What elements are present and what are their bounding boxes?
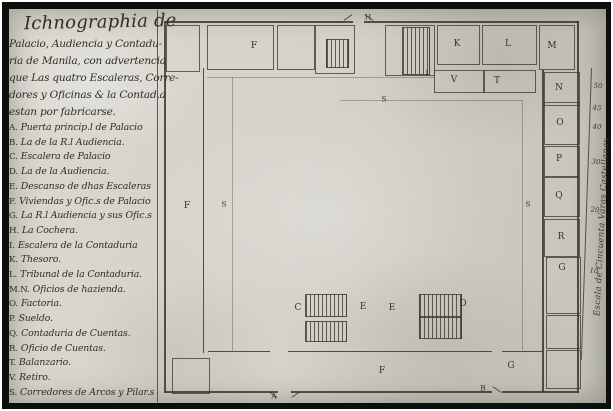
room [172, 358, 210, 394]
legend-item: T.Balanzario. [9, 356, 158, 371]
legend-item: F.Viviendas y Ofic.s de Palacio [9, 195, 158, 210]
plan-label: M [547, 41, 556, 51]
legend-key: F. [9, 197, 16, 207]
staircase-hatch [305, 321, 347, 342]
legend-key: P. [9, 314, 15, 324]
legend-key: C. [9, 152, 18, 162]
title-subline: Palacio, Audiencia y Contadu- [9, 36, 158, 53]
room [546, 315, 581, 349]
legend-key: E. [9, 182, 18, 192]
arcade-line [340, 100, 522, 101]
wall [291, 391, 492, 393]
plan-label: E [389, 303, 396, 313]
scale-tick: 40 [592, 123, 601, 132]
plan-label: F [184, 201, 190, 211]
staircase-hatch [305, 294, 347, 317]
staircase-hatch [419, 317, 462, 339]
legend-item: P.Sueldo. [9, 312, 158, 327]
plan-label: S [221, 200, 226, 209]
arcade-line [232, 77, 233, 352]
arcade-line [522, 100, 523, 350]
legend-key: R. [9, 344, 18, 354]
legend-item: C.Escalera de Palacio [9, 150, 158, 165]
scale-tick: 45 [592, 104, 601, 113]
room [277, 25, 315, 70]
plan-label: S [525, 200, 530, 209]
room [207, 25, 274, 70]
plan-label: B [480, 384, 486, 393]
title-subline: dores y Oficinas & la Contad.a [9, 87, 158, 104]
room [434, 70, 485, 93]
title-subline: estan por fabricarse. [9, 104, 158, 121]
legend-item: E.Descanso de dhas Escaleras [9, 180, 158, 195]
plan-label: N [555, 83, 563, 93]
plan-label: R [558, 232, 565, 242]
legend-text: Sueldo. [18, 313, 52, 324]
legend-key: M.N. [9, 285, 30, 295]
plan-label: F [251, 41, 257, 51]
wall [364, 21, 579, 23]
plan-label: A [271, 392, 276, 401]
legend-key: V. [9, 373, 16, 383]
plan-label: O [556, 118, 563, 128]
legend-item: O.Factoria. [9, 297, 158, 312]
legend-text: La de la R.l Audiencia. [21, 137, 125, 148]
legend-separator [157, 10, 158, 402]
scale-tick: 50 [593, 82, 602, 91]
plan-label: E [360, 302, 367, 312]
legend-key: L. [9, 270, 17, 280]
legend-text: Contaduria de Cuentas. [21, 328, 130, 339]
legend-item: S.Corredores de Arcos y Pilar.s [9, 386, 158, 401]
plan-label: L [505, 39, 511, 49]
legend-text: Puerta princip.l de Palacio [21, 122, 143, 133]
legend-key: A. [9, 123, 18, 133]
plan-label: V [451, 75, 458, 85]
plan-label: Q [555, 191, 562, 201]
plan-label: H [365, 13, 372, 22]
legend-text: Factoria. [21, 298, 62, 309]
legend-item: B.La de la R.l Audiencia. [9, 136, 158, 151]
legend-text: Balanzario. [19, 357, 71, 368]
legend-text: Escalera de la Contaduria [18, 240, 138, 251]
plan-label: K [454, 39, 461, 49]
legend-item: G.La R.l Audiencia y sus Ofic.s [9, 209, 158, 224]
legend-item: A.Puerta princip.l de Palacio [9, 121, 158, 136]
room [546, 350, 581, 389]
legend-text: Oficio de Cuentas. [21, 343, 106, 354]
wall [288, 351, 492, 352]
legend-item: H.La Cochera. [9, 224, 158, 239]
legend-key: S. [9, 388, 17, 398]
legend-item: D.La de la Audiencia. [9, 165, 158, 180]
staircase-hatch [419, 294, 462, 317]
legend-item: I.Escalera de la Contaduria [9, 239, 158, 254]
legend-text: Oficios de hazienda. [33, 284, 126, 295]
wall [502, 351, 543, 352]
legend-key: K. [9, 255, 18, 265]
legend-text: La R.l Audiencia y sus Ofic.s [21, 210, 152, 221]
room [483, 70, 536, 93]
plan-label: S [381, 95, 386, 104]
wall [502, 391, 579, 393]
arcade-line [207, 77, 435, 78]
plan-label: C [295, 303, 302, 313]
plan-label: D [459, 299, 466, 309]
legend-key: O. [9, 299, 18, 309]
legend-text: Retiro. [19, 372, 50, 383]
legend-panel: Ichnographia de Palacio, Audiencia y Con… [9, 10, 158, 400]
room [166, 25, 200, 72]
map-title: Ichnographia de [9, 8, 159, 37]
plan-label: P [556, 154, 562, 164]
legend-key: B. [9, 138, 18, 148]
plan-label: F [379, 366, 385, 376]
title-subline: que Las quatro Escaleras, Corre- [9, 70, 158, 87]
legend-key: Q. [9, 329, 18, 339]
legend-item: L.Tribunal de la Contaduria. [9, 268, 158, 283]
legend-text: Viviendas y Ofic.s de Palacio [19, 196, 150, 207]
staircase-hatch [326, 39, 349, 68]
wall [165, 21, 353, 23]
legend-item: R.Oficio de Cuentas. [9, 342, 158, 357]
legend-text: La Cochera. [22, 225, 78, 236]
legend-key: H. [9, 226, 19, 236]
title-subline: ria de Manila, con advertencia [9, 53, 158, 70]
legend-text: Tribunal de la Contaduria. [20, 269, 142, 280]
plan-label: G [558, 263, 565, 273]
room [539, 25, 575, 70]
plan-label: I [426, 69, 429, 78]
wall [208, 351, 270, 352]
legend-item: M.N.Oficios de hazienda. [9, 283, 158, 298]
legend-text: Descanso de dhas Escaleras [21, 181, 151, 192]
wall [164, 21, 166, 393]
legend-key: G. [9, 211, 18, 221]
legend-text: Escalera de Palacio [21, 151, 111, 162]
plan-label: T [494, 76, 500, 86]
archival-photo: Ichnographia de Palacio, Audiencia y Con… [0, 0, 613, 411]
legend-item: V.Retiro. [9, 371, 158, 386]
legend-key: D. [9, 167, 18, 177]
legend-key: T. [9, 358, 16, 368]
legend-item: K.Thesoro. [9, 253, 158, 268]
wall [203, 68, 204, 353]
legend-text: La de la Audiencia. [21, 166, 109, 177]
legend-text: Corredores de Arcos y Pilar.s [20, 387, 154, 398]
plan-label: G [507, 361, 514, 371]
legend-key: I. [9, 241, 15, 251]
legend-item: Q.Contaduria de Cuentas. [9, 327, 158, 342]
legend-text: Thesoro. [21, 254, 61, 265]
